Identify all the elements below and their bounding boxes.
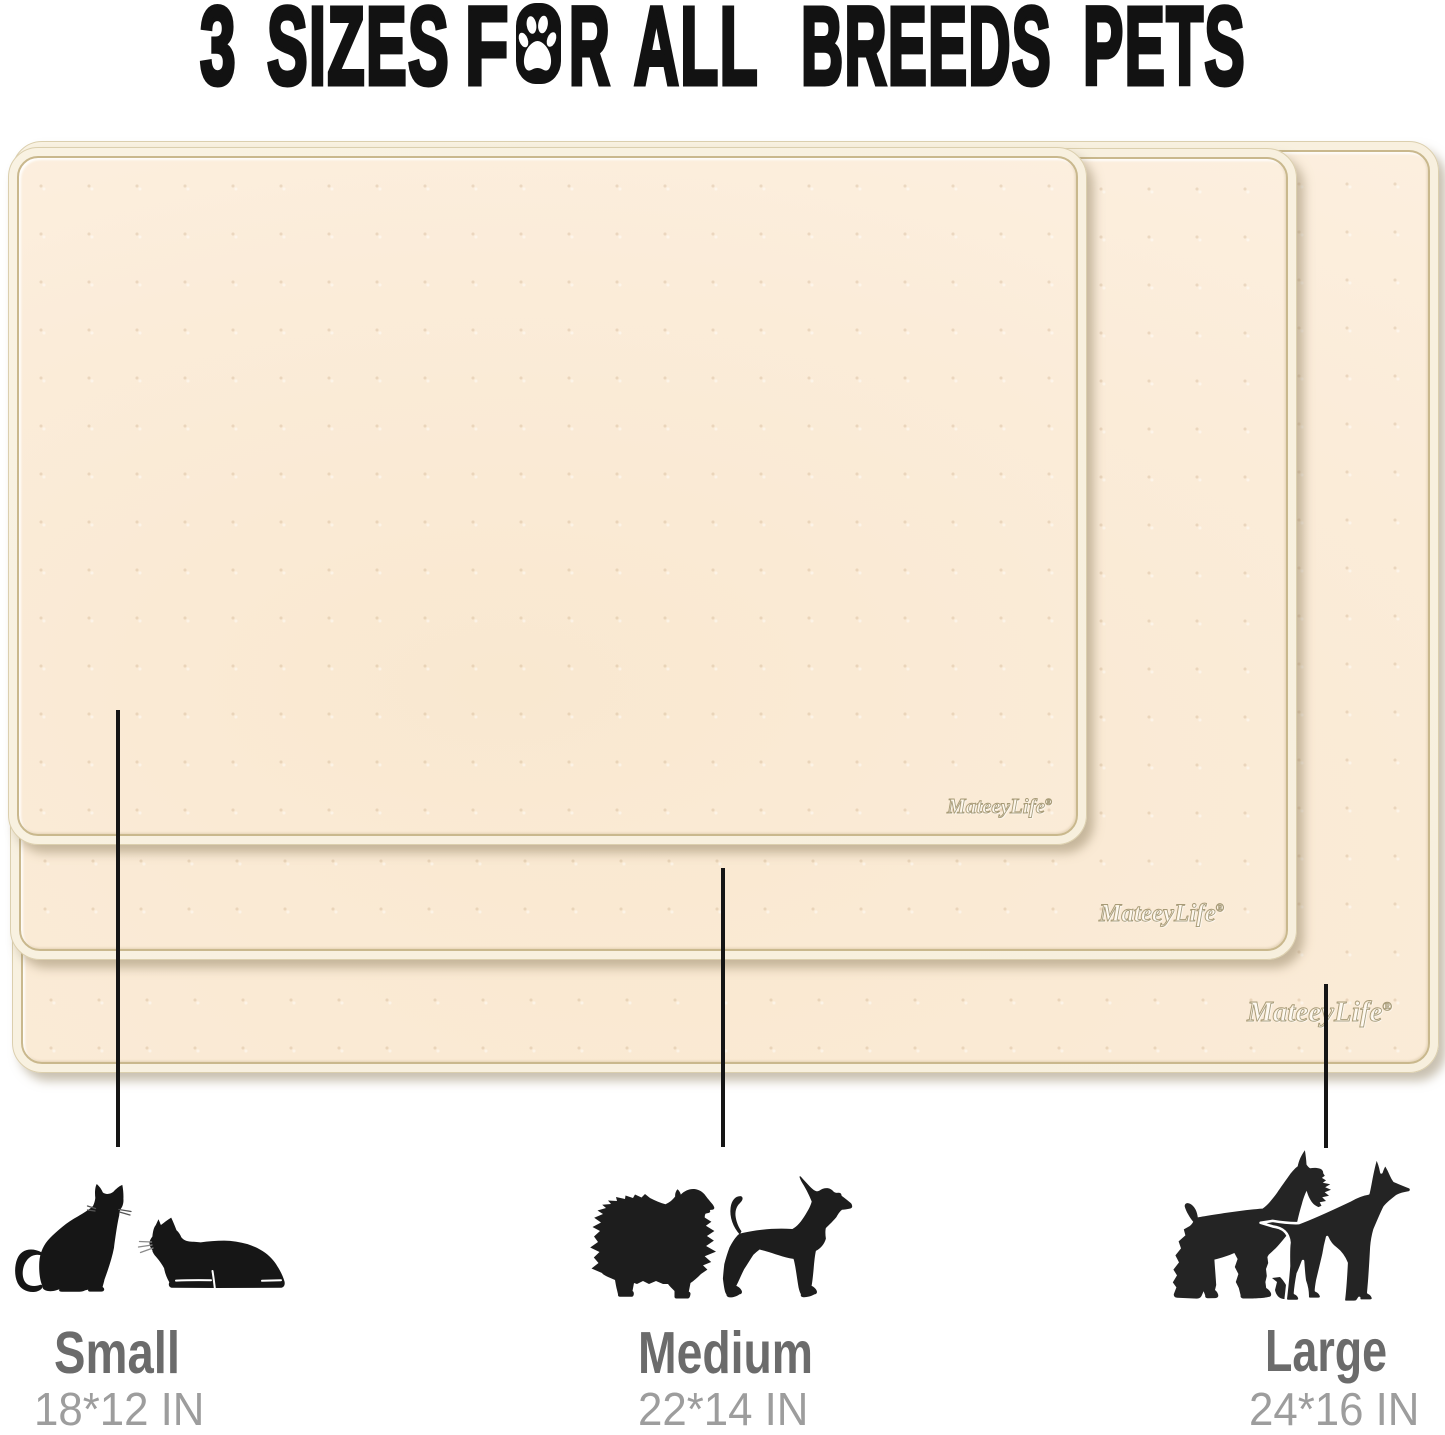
svg-text:ALL: ALL [634,0,759,108]
svg-text:R: R [569,0,611,108]
svg-text:F: F [465,0,510,108]
svg-text:3: 3 [200,0,237,108]
svg-text:SIZES: SIZES [267,0,450,108]
svg-text:PETS: PETS [1083,0,1246,108]
svg-text:BREEDS: BREEDS [801,0,1052,108]
